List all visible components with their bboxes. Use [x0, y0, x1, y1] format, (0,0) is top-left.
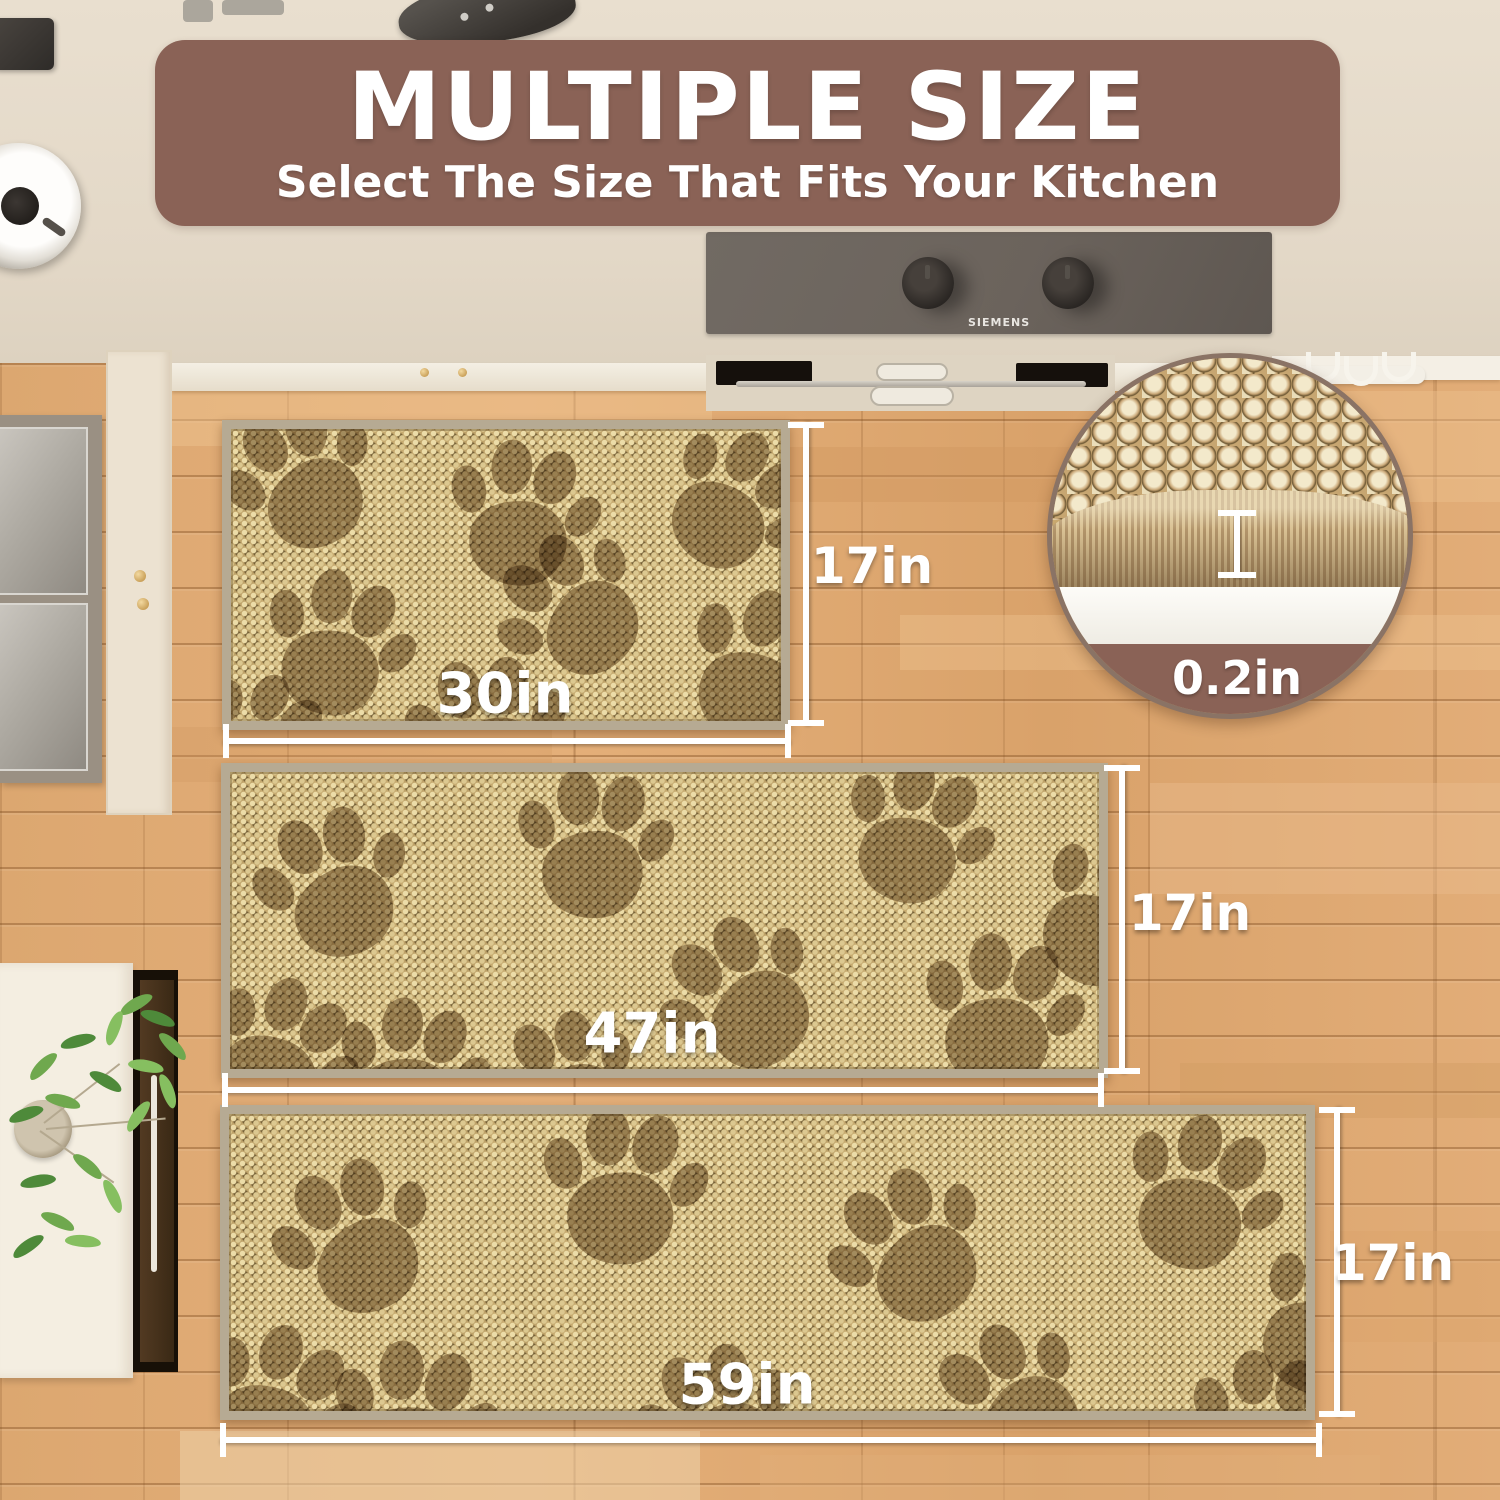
thickness-closeup-inset: 0.2in	[1047, 353, 1413, 719]
rug-small-width-label: 30in	[437, 662, 574, 727]
product-size-infographic: SIEMENS 30in 47in 59in 17in 17in 17i	[0, 0, 1500, 1500]
door-knob-icon	[137, 598, 149, 610]
thickness-measure-icon	[1234, 510, 1240, 578]
appliance-upper-door	[0, 427, 88, 595]
drawer-handle-icon	[876, 363, 948, 381]
banner-title: MULTIPLE SIZE	[347, 61, 1147, 155]
paw-print-icon	[804, 763, 1025, 943]
rug-medium-height-dimension-line	[1119, 765, 1125, 1074]
cabinet-knob-icon	[420, 368, 429, 377]
door-knob-icon	[134, 570, 146, 582]
rug-small-height-dimension-line	[803, 422, 809, 726]
kettle-lever	[41, 216, 67, 237]
rug-large-width-dimension-line	[220, 1437, 1322, 1443]
paw-print-icon	[496, 763, 688, 941]
appliance-lower-door	[0, 603, 88, 771]
rug-large-height-label: 17in	[1332, 1234, 1454, 1292]
rug-backing-closeup	[1047, 587, 1413, 644]
stainless-appliance	[0, 415, 102, 783]
espresso-machine	[0, 18, 54, 70]
faucet-part	[183, 0, 213, 22]
cabinet-knob-icon	[458, 368, 467, 377]
header-banner: MULTIPLE SIZE Select The Size That Fits …	[155, 40, 1340, 226]
banner-subtitle: Select The Size That Fits Your Kitchen	[276, 161, 1219, 205]
thickness-value-label: 0.2in	[1172, 651, 1302, 705]
appliance-brand-label: SIEMENS	[968, 316, 1030, 329]
rug-medium-width-dimension-line	[222, 1087, 1104, 1093]
rug-medium-width-label: 47in	[584, 1002, 721, 1067]
cooktop-panel: SIEMENS	[706, 232, 1272, 334]
rug-small-height-label: 17in	[811, 537, 933, 595]
pantry-door	[106, 350, 172, 815]
cooktop-knob-icon	[902, 257, 954, 309]
cabinet-handle-icon	[151, 1075, 157, 1272]
faucet-part	[222, 0, 284, 15]
rug-medium-height-label: 17in	[1129, 884, 1251, 942]
rug-small-width-dimension-line	[223, 738, 791, 744]
drawer-handle-icon	[870, 386, 954, 406]
rug-large-width-label: 59in	[679, 1353, 816, 1418]
cooktop-knob-icon	[1042, 257, 1094, 309]
paw-print-icon	[517, 1105, 726, 1291]
